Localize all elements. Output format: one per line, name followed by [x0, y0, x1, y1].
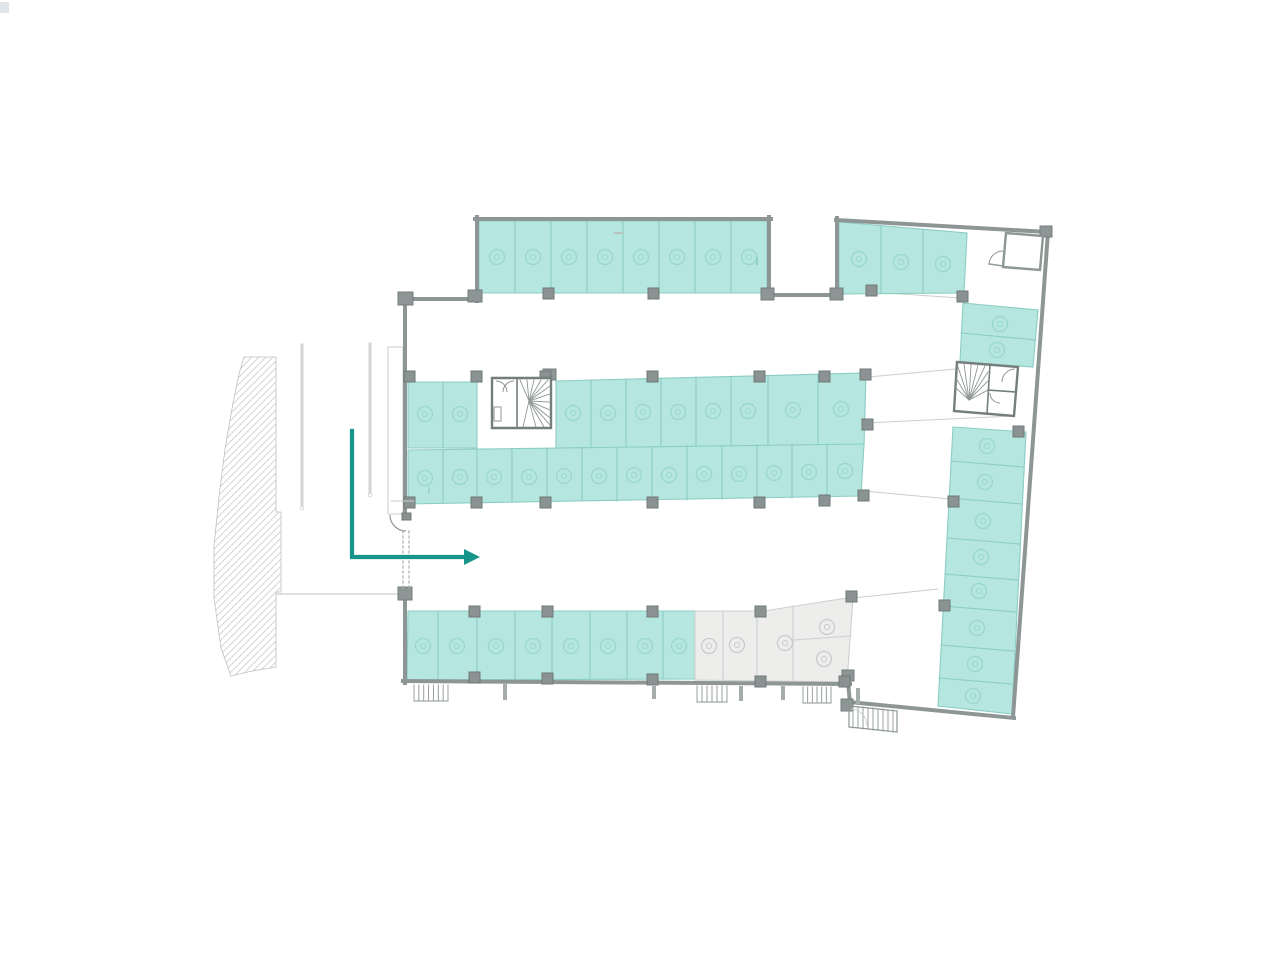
column [858, 490, 869, 501]
wall-block [761, 288, 774, 300]
facade-post [781, 686, 785, 700]
floor-plan-svg [0, 0, 1280, 960]
column [542, 673, 553, 684]
column [647, 371, 658, 382]
column [647, 606, 658, 617]
column [471, 371, 482, 382]
zone-right-column [938, 427, 1026, 714]
column [819, 495, 830, 506]
column [1013, 426, 1024, 437]
column [648, 288, 659, 299]
site-retaining-band [388, 347, 403, 514]
column [948, 496, 959, 507]
entrance-door-block [402, 513, 411, 520]
column [755, 606, 766, 617]
wall-block [468, 290, 482, 302]
column [754, 371, 765, 382]
corner-artifact [0, 2, 9, 13]
column [819, 371, 830, 382]
zone-bottom-teal [407, 611, 695, 680]
column [404, 497, 415, 508]
stair-core-left-fixture [494, 407, 501, 421]
facade-post [652, 686, 656, 699]
column [939, 600, 950, 611]
column [469, 606, 480, 617]
wall-block [398, 587, 412, 600]
column [860, 369, 871, 380]
column [647, 497, 658, 508]
annotation-tick [428, 487, 430, 494]
facade-post [503, 684, 507, 700]
column [957, 291, 968, 302]
column [755, 676, 766, 687]
wall-block [398, 292, 413, 305]
column [754, 497, 765, 508]
column [647, 674, 658, 685]
column [404, 371, 415, 382]
facade-post [739, 686, 743, 701]
column [540, 497, 551, 508]
column [469, 672, 480, 683]
stair-core-right [954, 362, 1018, 416]
column [542, 606, 553, 617]
annotation-tick [614, 232, 623, 234]
wing-utility-room [1003, 233, 1043, 270]
annotation-tick [756, 257, 758, 265]
facade-post [856, 688, 860, 704]
column [866, 285, 877, 296]
floor-plan-page [0, 0, 1280, 960]
wall-block [830, 288, 843, 300]
column [839, 676, 850, 687]
column [543, 288, 554, 299]
column [862, 419, 873, 430]
zone-mid-top-right [556, 373, 866, 448]
column [471, 497, 482, 508]
column [846, 591, 857, 602]
